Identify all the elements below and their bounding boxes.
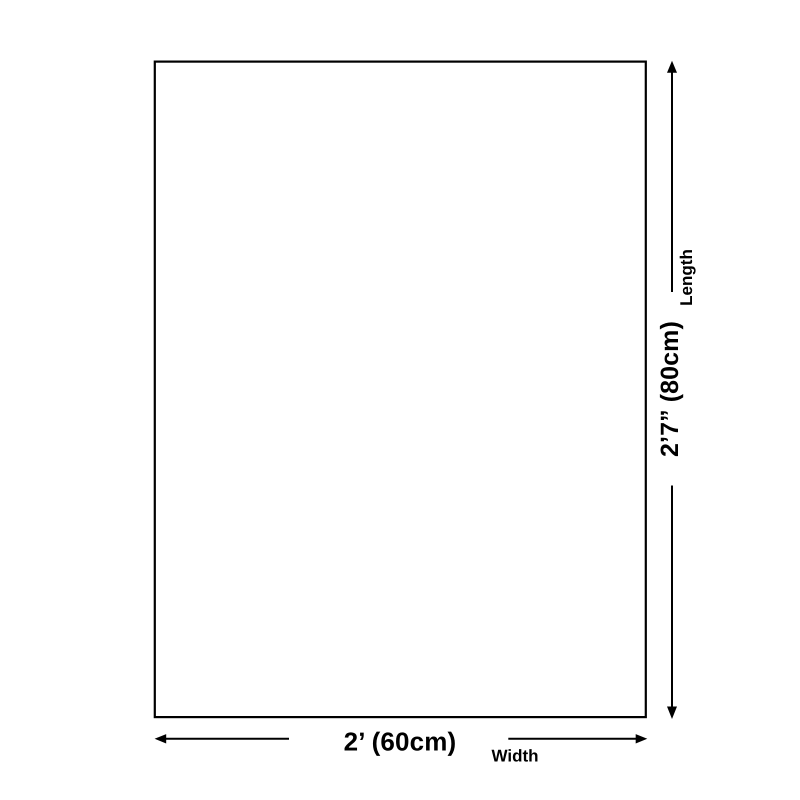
svg-text:Length: Length — [677, 249, 696, 306]
svg-text:2’ (60cm): 2’ (60cm) — [344, 726, 457, 756]
svg-text:Width: Width — [492, 747, 539, 766]
svg-text:2’7” (80cm): 2’7” (80cm) — [656, 321, 684, 457]
